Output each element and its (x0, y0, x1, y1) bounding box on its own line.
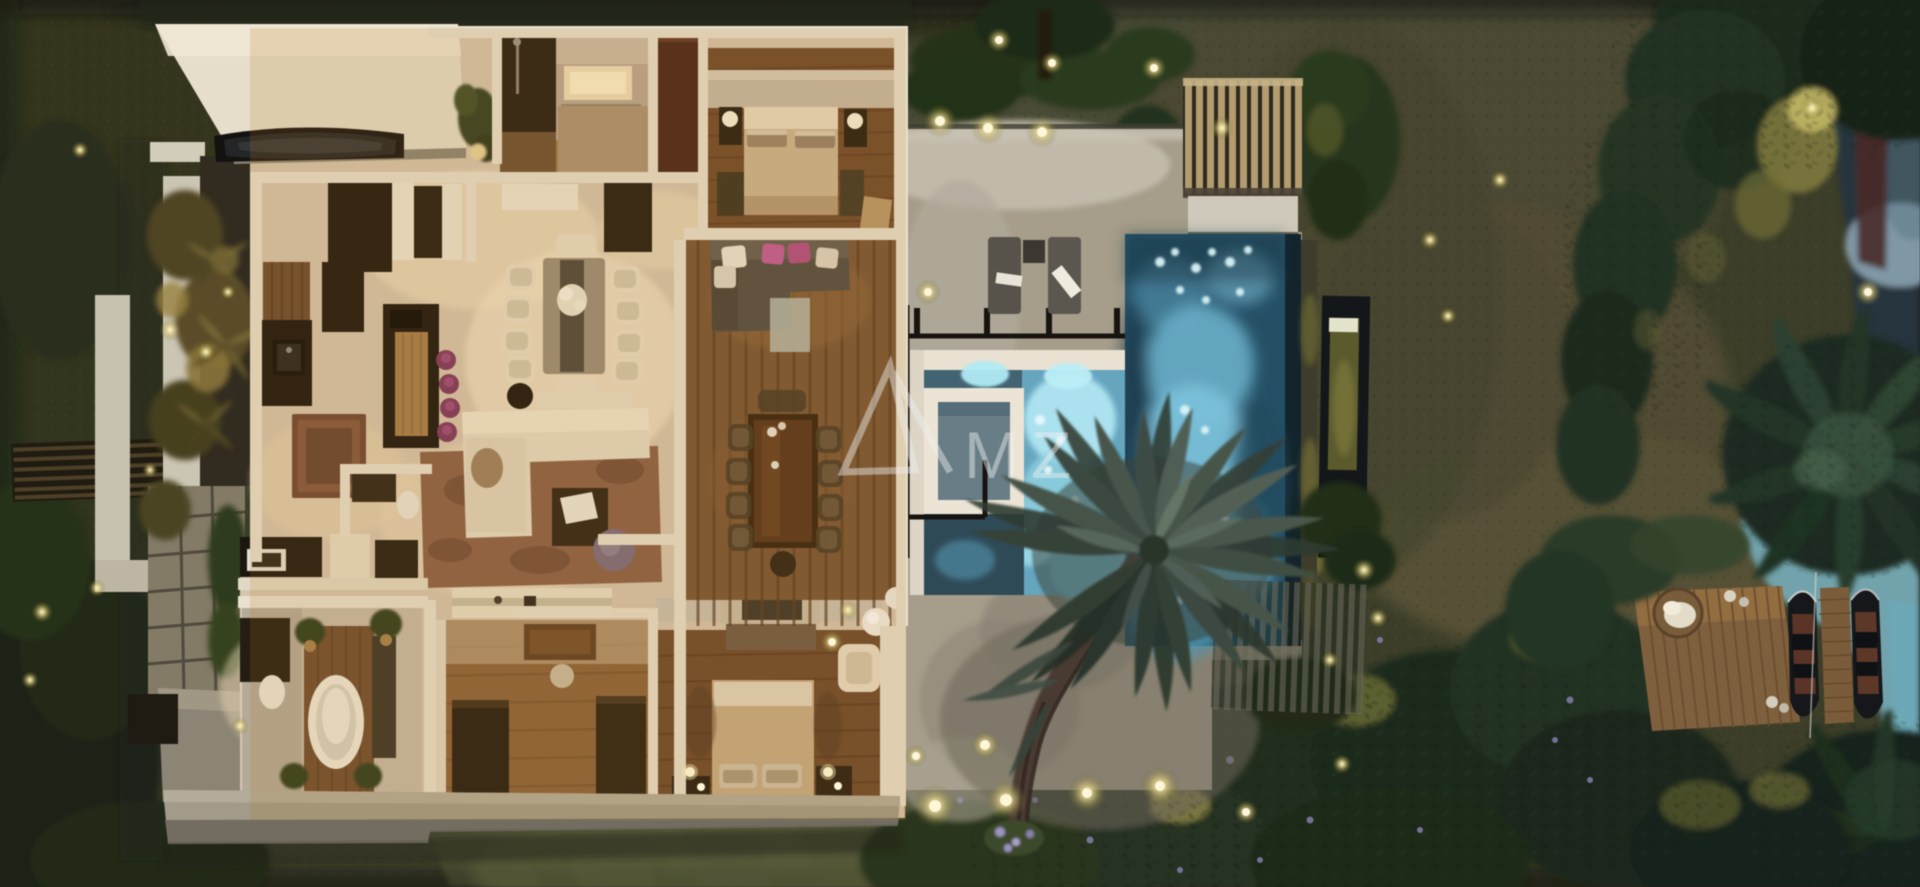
svg-text:MZ: MZ (964, 418, 1083, 492)
